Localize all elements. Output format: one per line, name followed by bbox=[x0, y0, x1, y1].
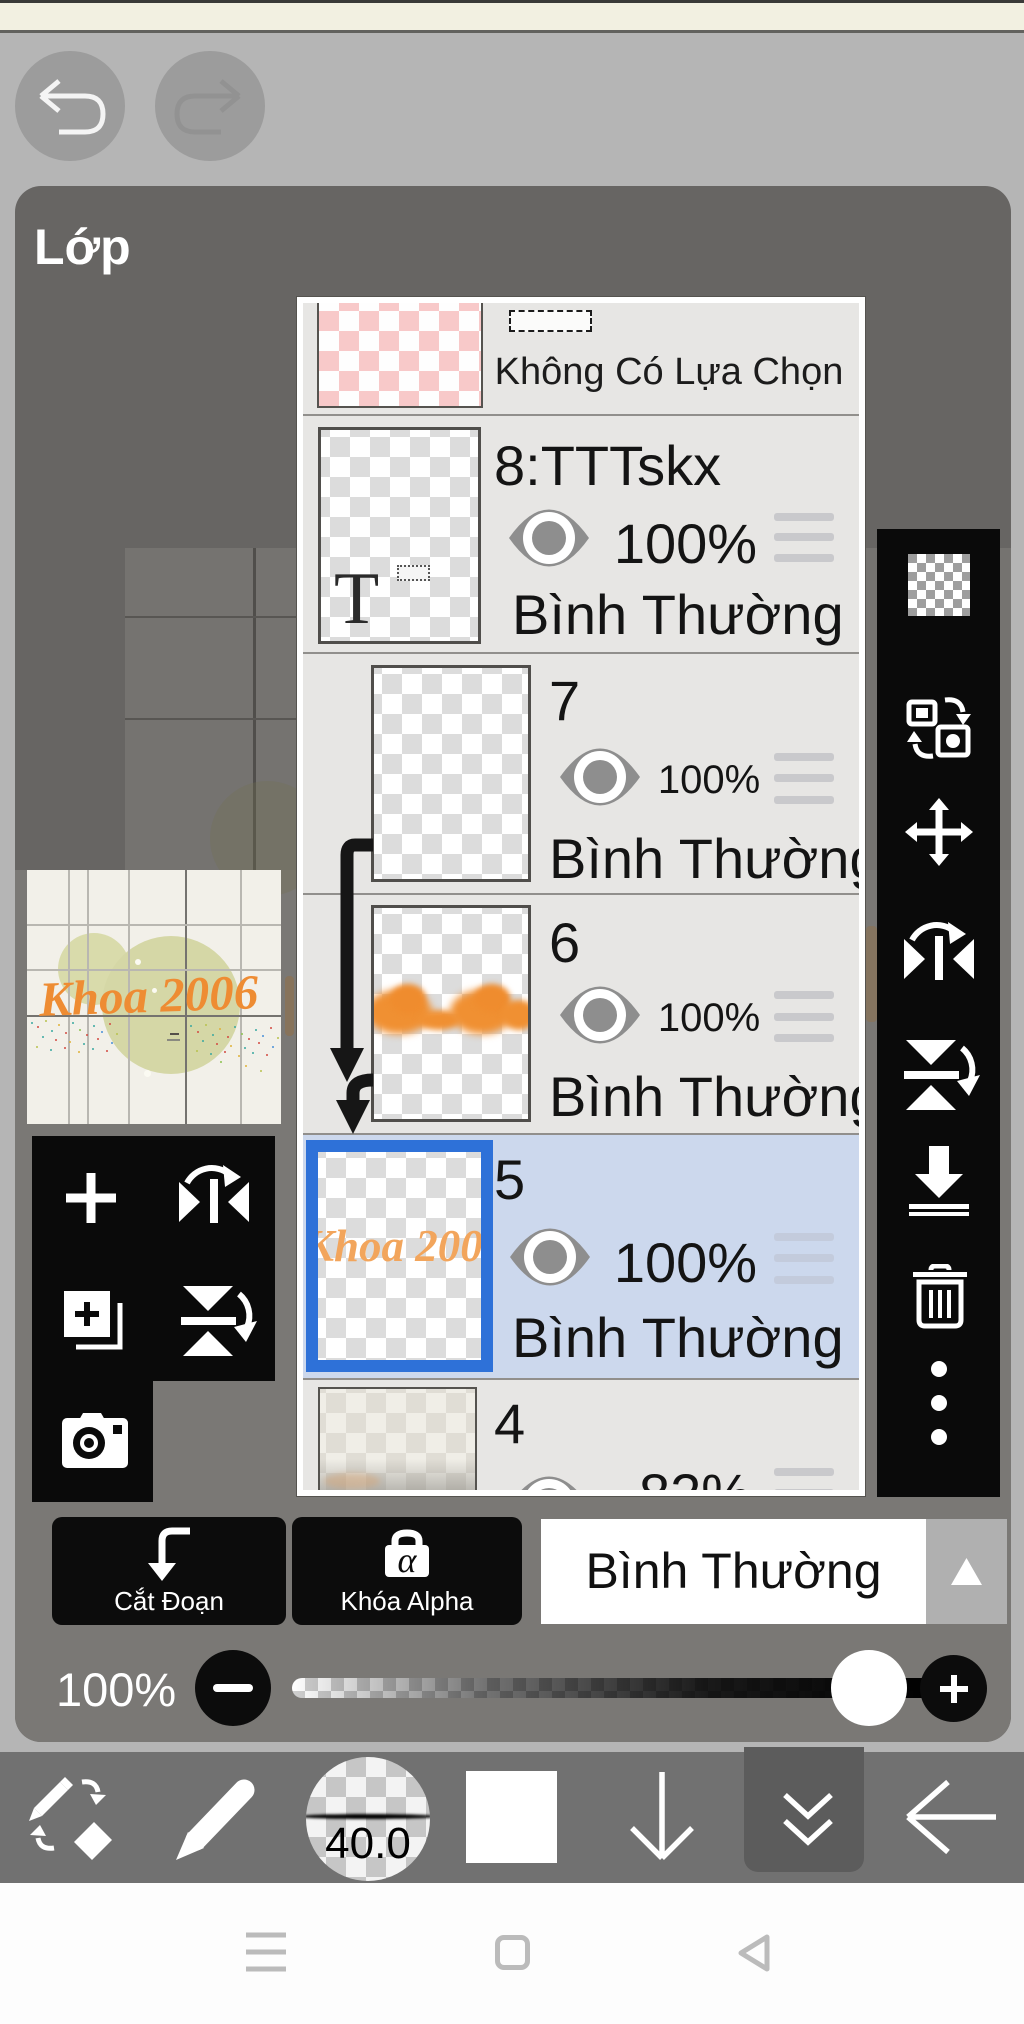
svg-text:α: α bbox=[398, 1540, 418, 1579]
